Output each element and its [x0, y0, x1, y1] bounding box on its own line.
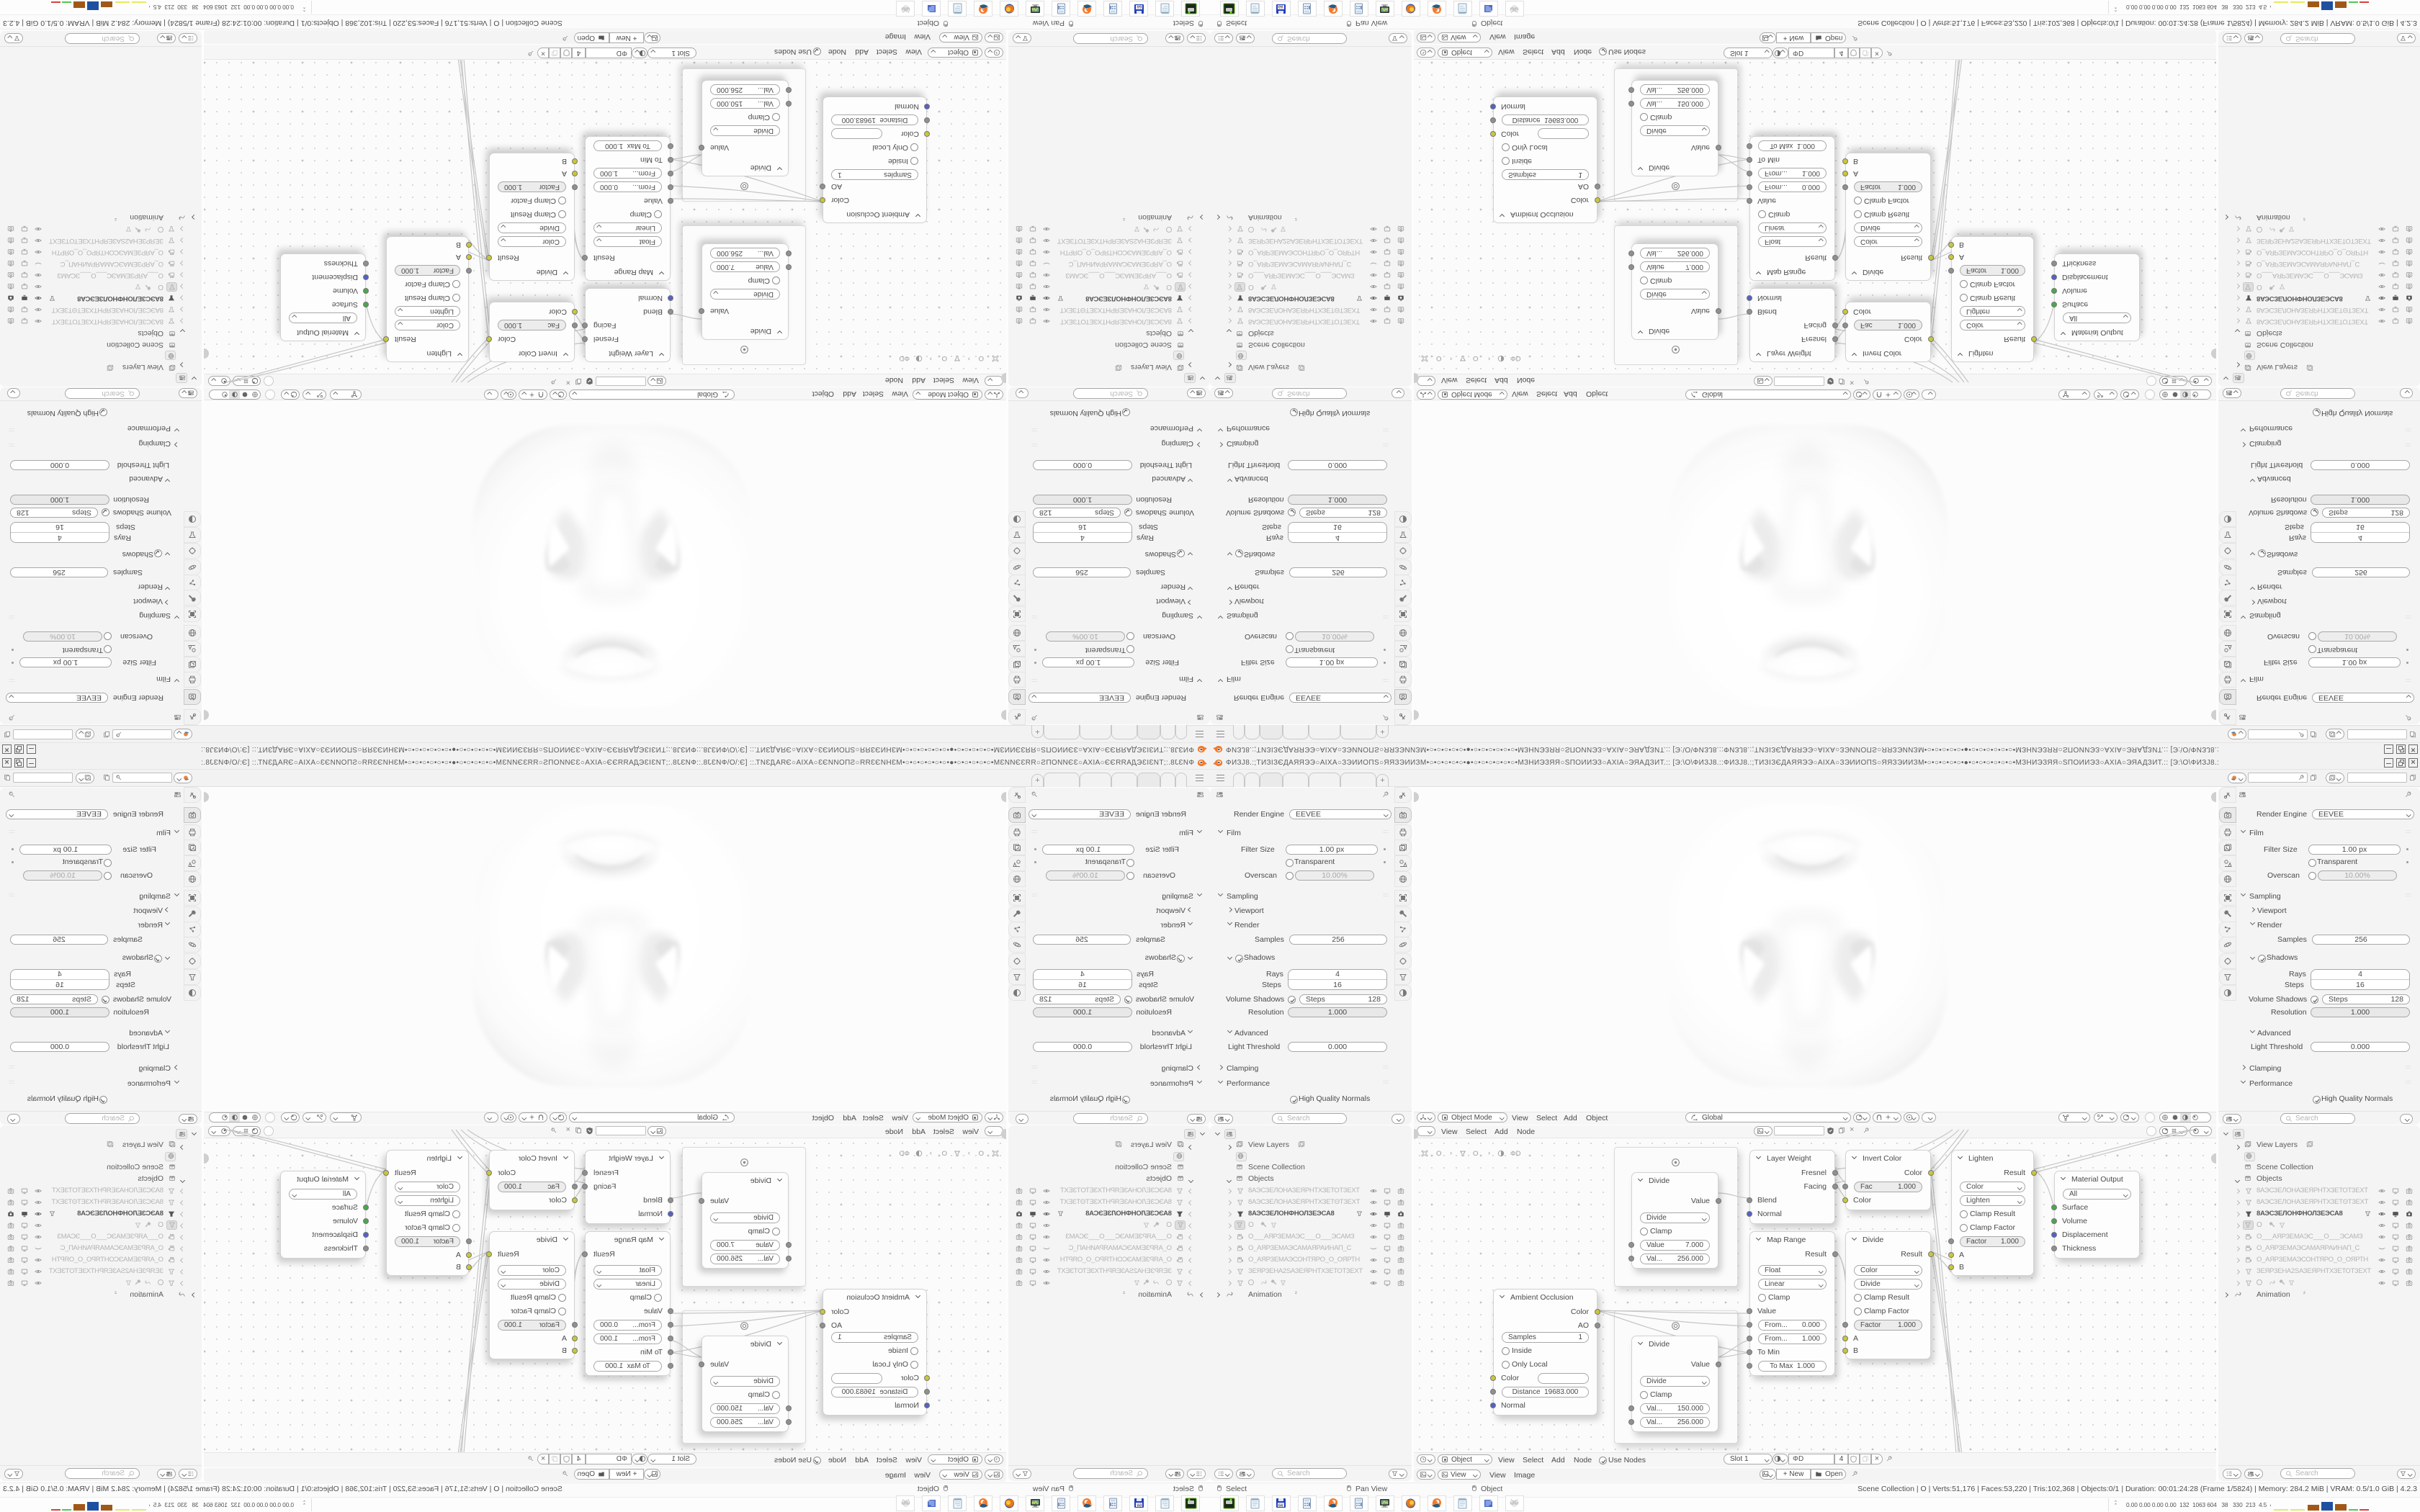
svg-text:64: 64 [1278, 4, 1283, 9]
svg-text:64: 64 [1137, 4, 1142, 9]
svg-text:64: 64 [1278, 1504, 1283, 1508]
svg-text:64: 64 [1137, 1504, 1142, 1508]
